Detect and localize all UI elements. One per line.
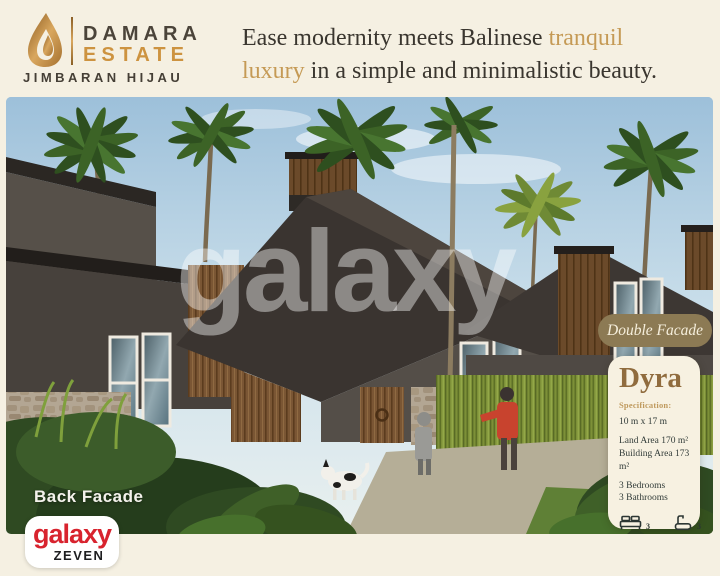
logo-name-line2: ESTATE	[83, 44, 189, 67]
bed-count: 3	[646, 522, 650, 531]
logo-name-line1: DAMARA	[83, 23, 202, 46]
flyer-page: { "colors": { "page_bg": "#f5f0e2", "tag…	[0, 0, 720, 576]
tagline-highlight1: tranquil	[549, 25, 624, 51]
hero-render: galaxy Back Facade Double Facade Dyra Sp…	[6, 97, 713, 534]
spec-building-area: Building Area 173 m²	[619, 448, 690, 474]
spec-icons-row: 3 3	[619, 515, 690, 531]
spec-card: Dyra Specification: 10 m x 17 m Land Are…	[608, 356, 700, 529]
spec-bedrooms: 3 Bedrooms	[619, 480, 690, 493]
tagline-part1: Ease modernity meets Balinese	[242, 25, 549, 51]
bed-icon	[619, 515, 643, 531]
bath-count: 3	[697, 522, 701, 531]
spec-areas: Land Area 170 m² Building Area 173 m²	[619, 435, 690, 473]
bath-icon	[674, 515, 694, 531]
spec-dimensions: 10 m x 17 m	[619, 416, 690, 429]
flame-logo-icon	[24, 11, 66, 69]
header: DAMARA ESTATE JIMBARAN HIJAU Ease modern…	[0, 0, 720, 97]
brand-sub-name: ZEVEN	[54, 549, 105, 562]
spec-rooms: 3 Bedrooms 3 Bathrooms	[619, 480, 690, 506]
brand-logo-box: galaxy ZEVEN	[25, 516, 119, 568]
bed-icon-group: 3	[619, 515, 650, 531]
logo-subtitle: JIMBARAN HIJAU	[23, 70, 183, 85]
wooden-gate	[360, 387, 404, 443]
double-facade-badge: Double Facade	[598, 314, 712, 347]
tagline-part2: in a simple and minimalistic beauty.	[305, 58, 657, 84]
spec-section-label: Specification:	[619, 400, 690, 410]
logo-divider	[71, 17, 73, 65]
spec-bathrooms: 3 Bathrooms	[619, 492, 690, 505]
tagline-highlight2: luxury	[242, 58, 305, 84]
bath-icon-group: 3	[674, 515, 701, 531]
brand-name: galaxy	[33, 521, 111, 548]
spec-land-area: Land Area 170 m²	[619, 435, 690, 448]
facade-label: Back Facade	[34, 487, 143, 507]
unit-title: Dyra	[619, 362, 690, 395]
tagline: Ease modernity meets Balinese tranquil l…	[242, 22, 710, 88]
